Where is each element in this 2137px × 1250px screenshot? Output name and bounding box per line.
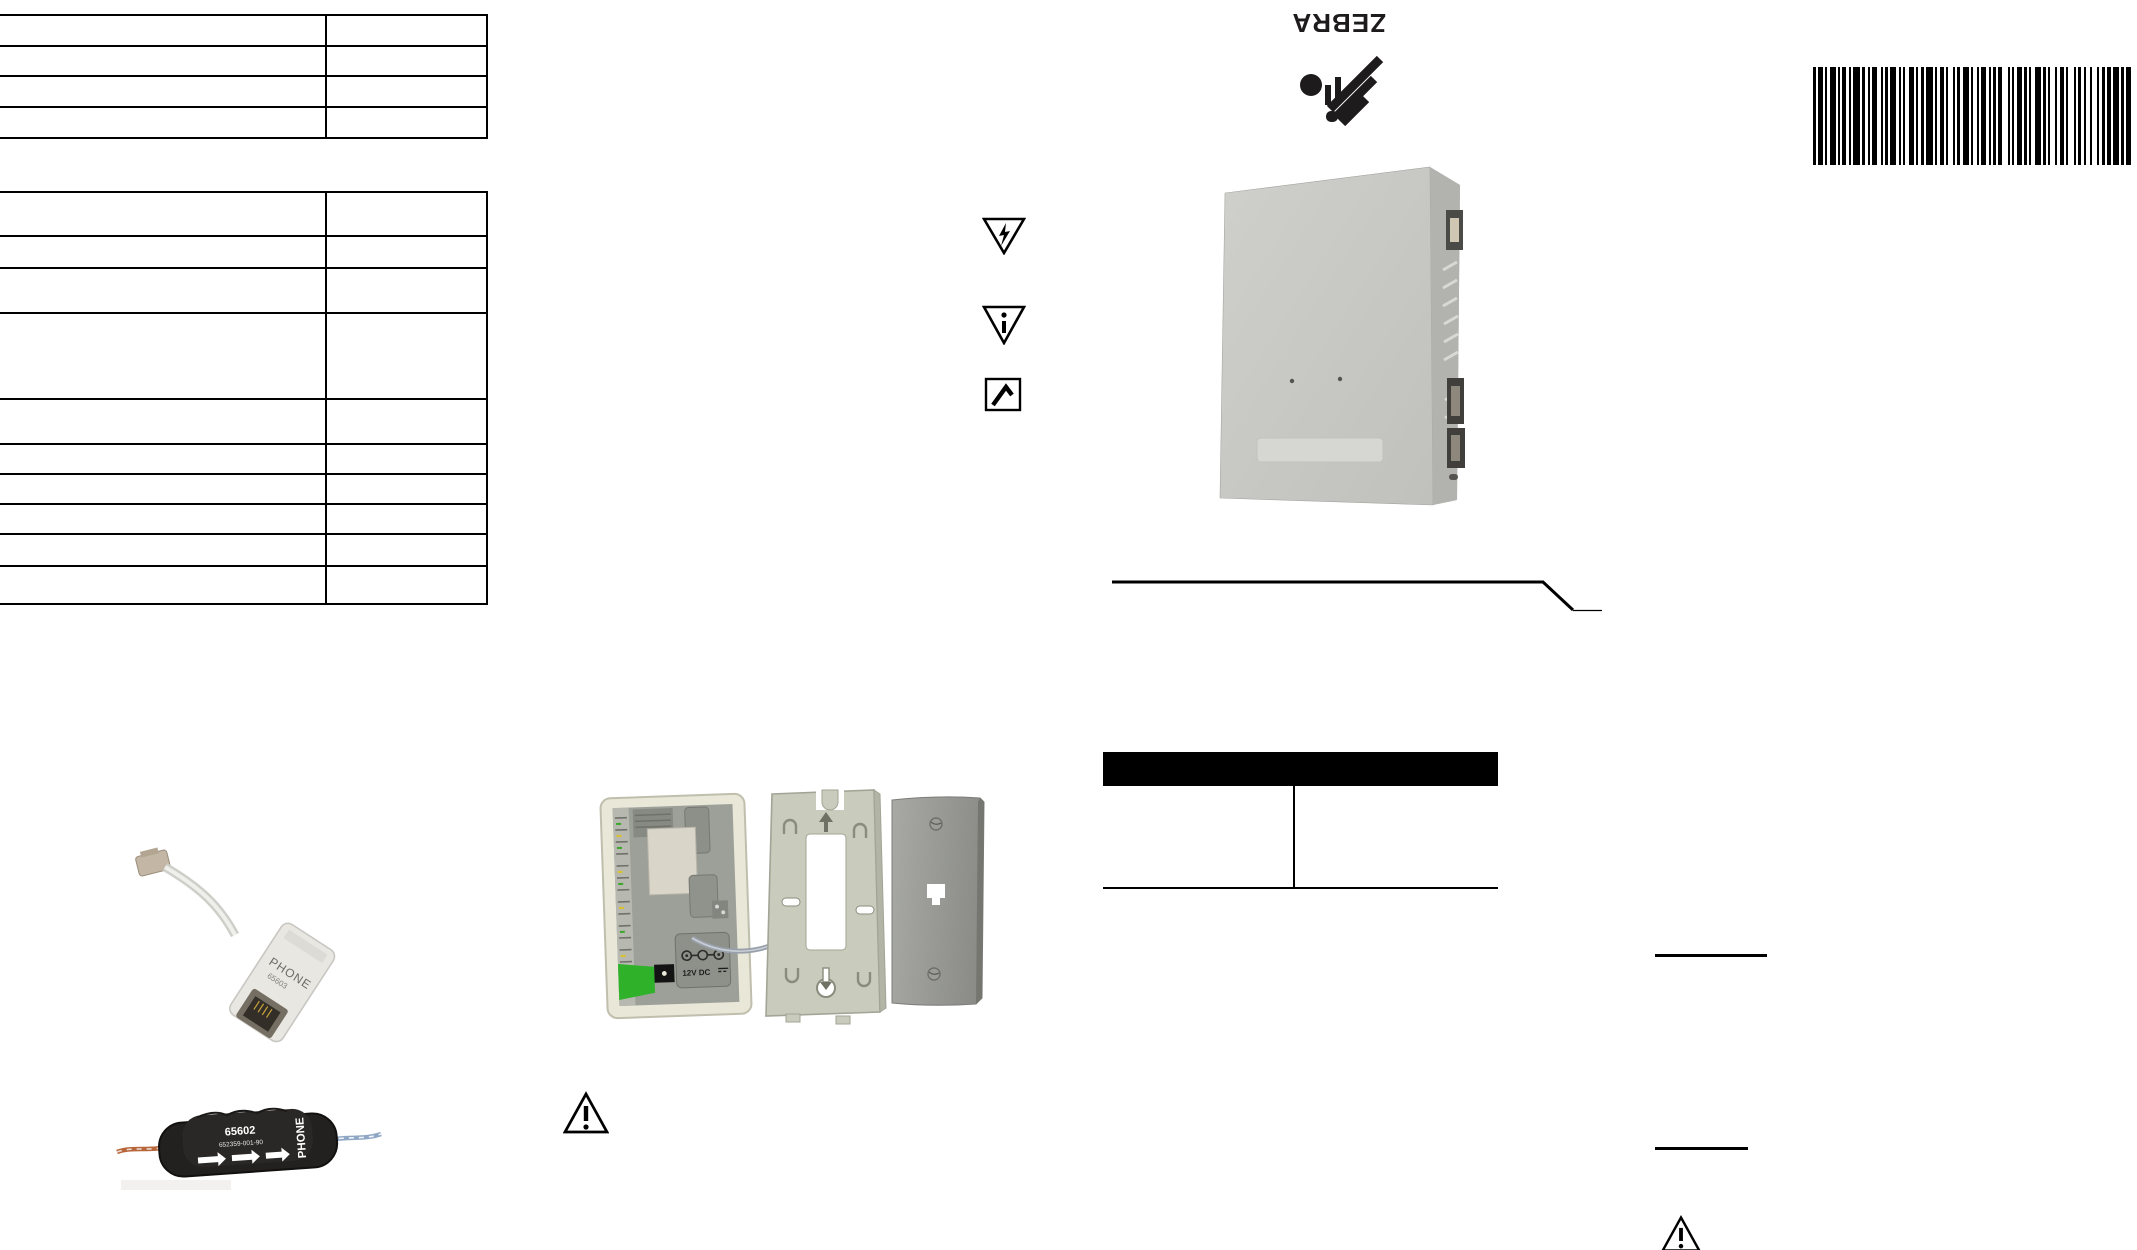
open-access-point: 12V DC xyxy=(600,794,752,1019)
table-row xyxy=(0,475,486,505)
electric-hazard-triangle-icon xyxy=(982,217,1026,255)
spec-table-top xyxy=(0,14,488,139)
table-row xyxy=(0,47,486,77)
callout-table-body xyxy=(1103,786,1498,889)
barcode xyxy=(1813,67,2131,165)
bend-radius-box-icon xyxy=(984,377,1024,413)
table-column-divider xyxy=(325,193,327,605)
table-row xyxy=(0,16,486,47)
splitter-cable xyxy=(165,867,235,935)
table-row xyxy=(0,193,486,237)
table-row xyxy=(0,269,486,314)
footnote-rule xyxy=(1655,1147,1748,1150)
filter-part-number: 65602 xyxy=(224,1124,255,1138)
wall-plate xyxy=(892,797,984,1005)
panel-fold-line xyxy=(1110,576,1610,616)
callout-table-header-bar xyxy=(1103,752,1498,786)
table-row xyxy=(0,445,486,475)
caution-triangle-inverted-icon xyxy=(982,305,1026,345)
table-row xyxy=(0,237,486,269)
table-row xyxy=(0,314,486,400)
zebra-wordmark: ZEBRA xyxy=(1294,8,1386,38)
label-recess xyxy=(1257,438,1383,462)
table-row xyxy=(0,567,486,605)
table-row xyxy=(0,535,486,567)
callout-table xyxy=(1103,752,1498,889)
table-column-divider xyxy=(325,16,327,139)
mounting-bracket xyxy=(766,790,886,1024)
power-label: 12V DC xyxy=(682,968,711,978)
phone-splitter-photo: PHONE 65603 xyxy=(133,843,338,1048)
table-row xyxy=(0,400,486,445)
spec-table-main xyxy=(0,191,488,605)
warning-triangle-icon xyxy=(1661,1212,1701,1250)
table-row xyxy=(0,108,486,139)
table-row xyxy=(0,505,486,535)
led-hole xyxy=(1290,379,1294,383)
zebra-head-icon xyxy=(1294,47,1386,145)
foldout-guide-page: ZEBRA xyxy=(0,0,2137,1250)
warning-triangle-icon xyxy=(563,1091,609,1135)
inline-filter-photo: 65602 652359-001-90 PHONE xyxy=(113,1088,385,1193)
access-point-photo xyxy=(1212,160,1474,512)
wall-mount-diagram: 12V DC xyxy=(588,776,1018,1026)
table-column-divider xyxy=(1293,786,1295,887)
table-row xyxy=(0,77,486,108)
footnote-rule xyxy=(1655,954,1767,957)
led-hole xyxy=(1338,377,1342,381)
